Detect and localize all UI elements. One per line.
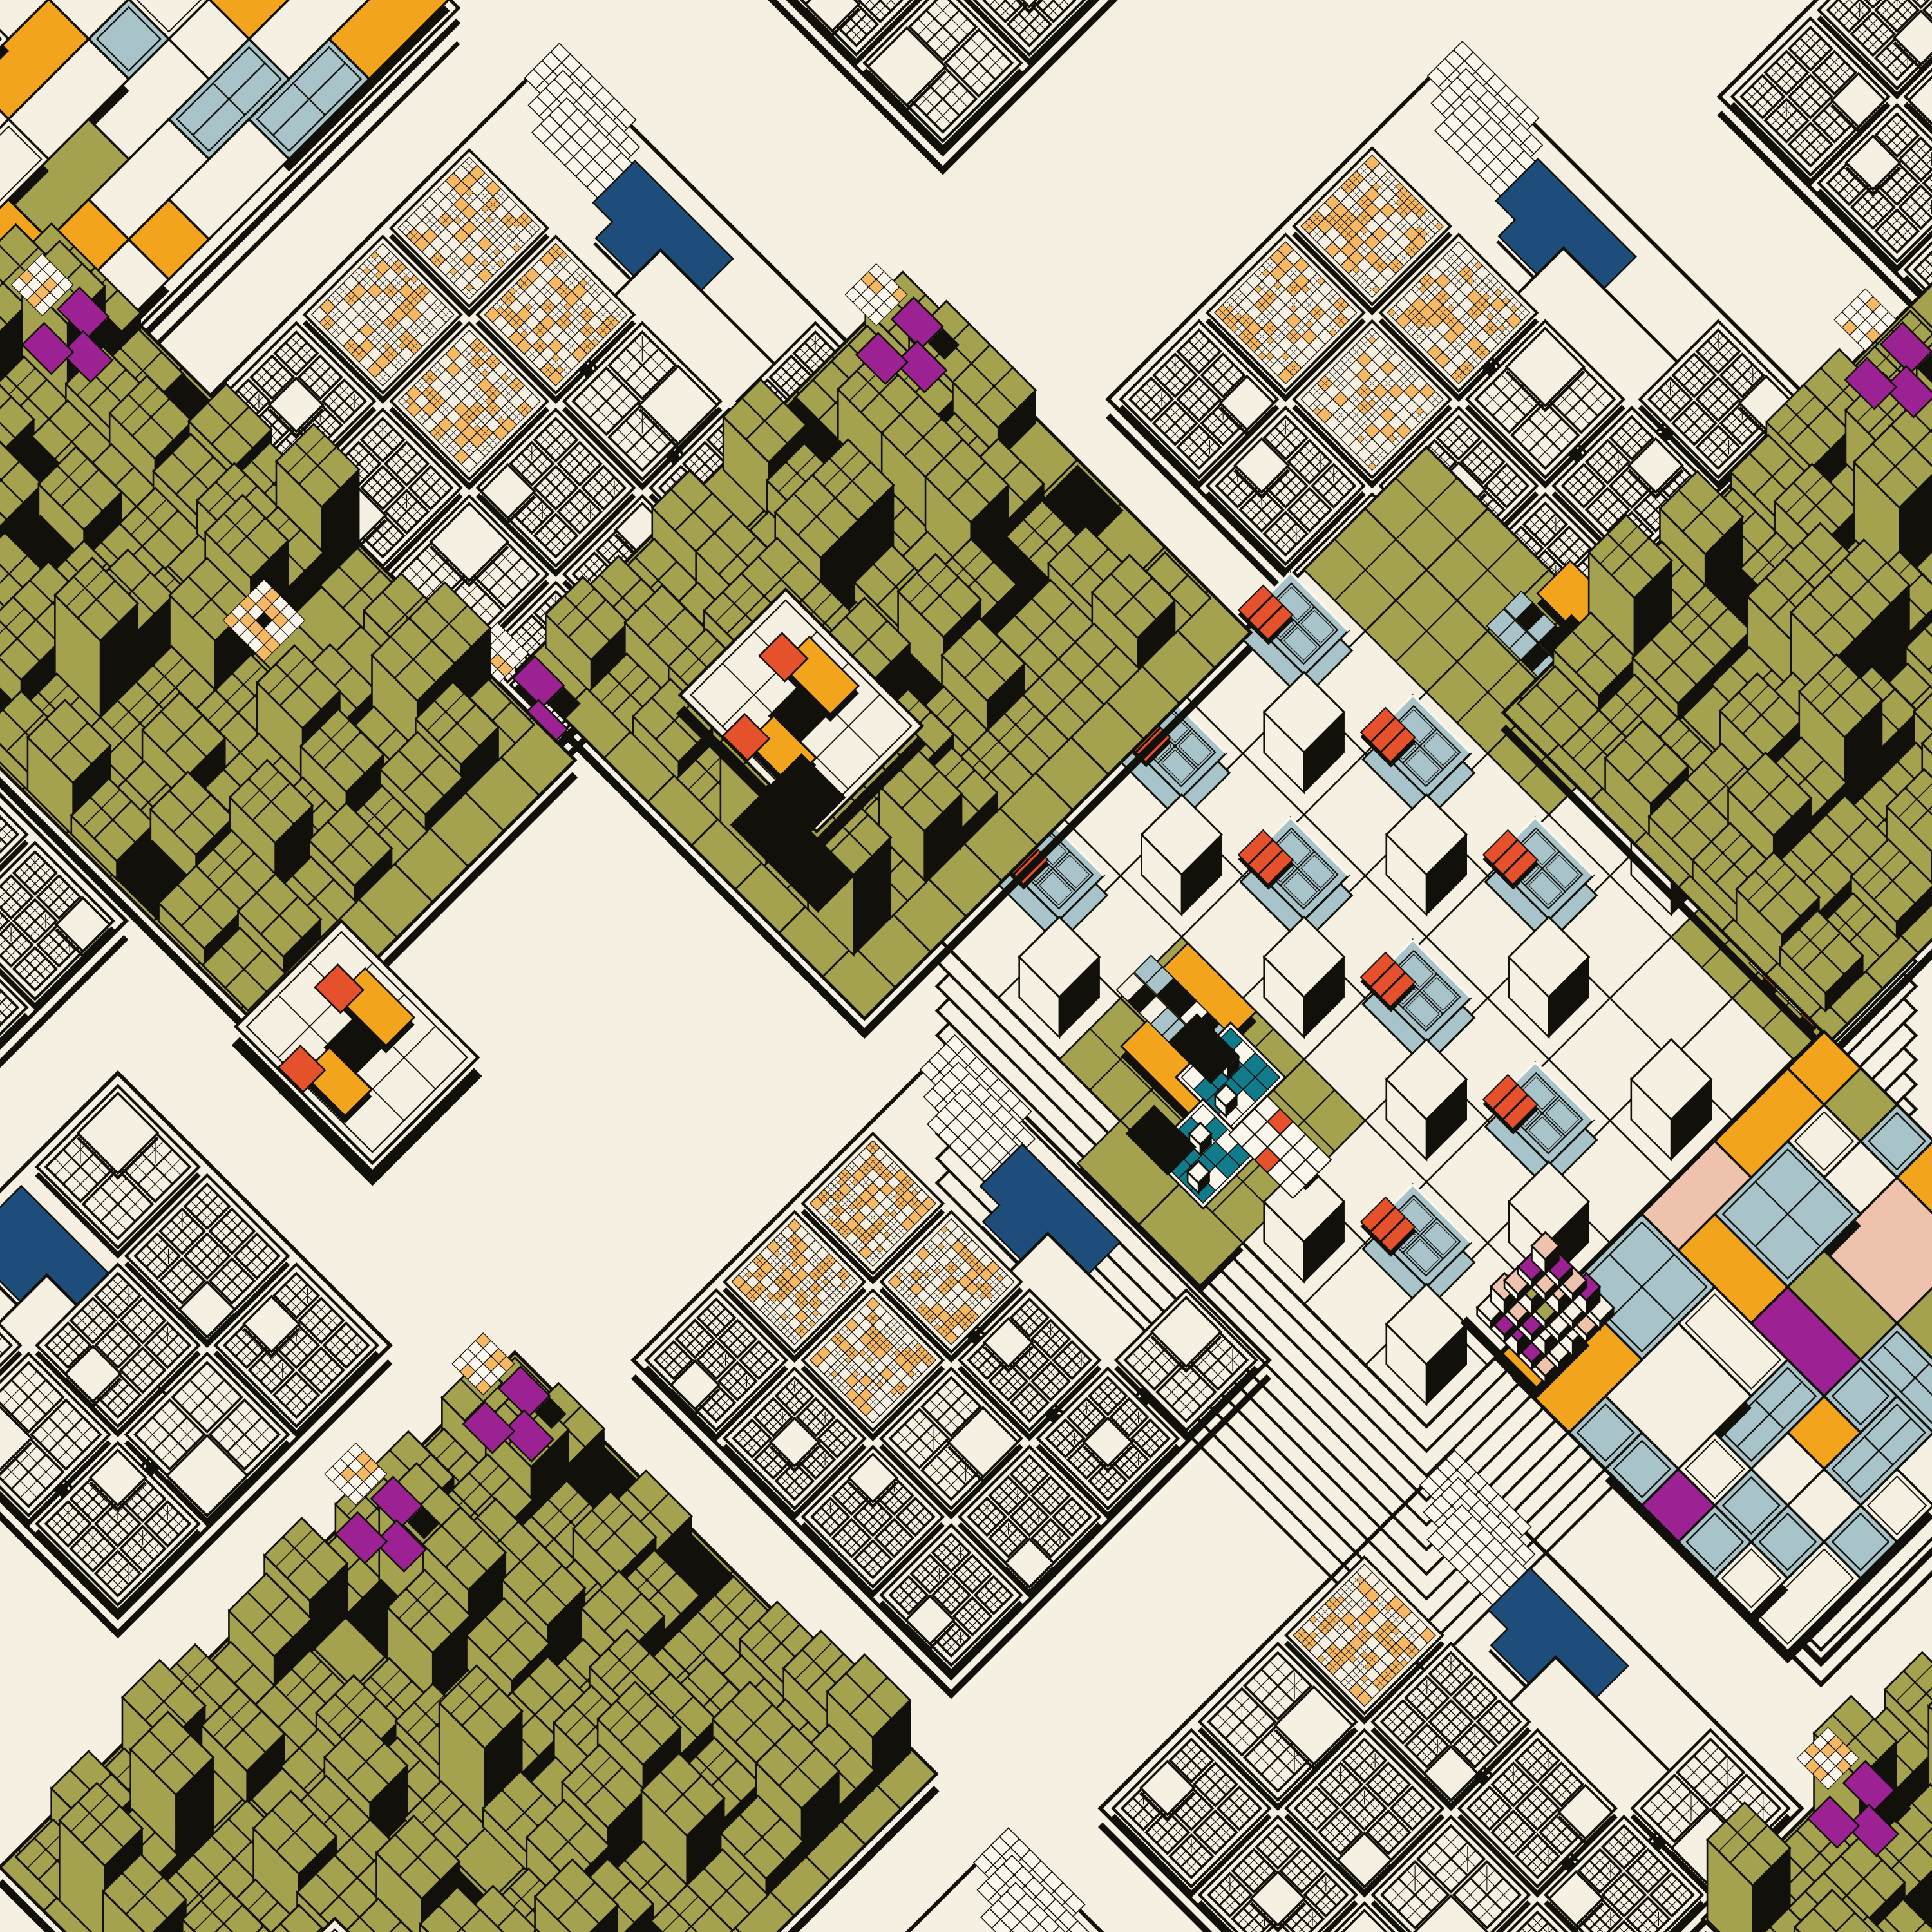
artwork-stage <box>0 0 1932 1932</box>
district-plan-top-center <box>670 0 1215 171</box>
city-canvas <box>0 0 1932 1932</box>
